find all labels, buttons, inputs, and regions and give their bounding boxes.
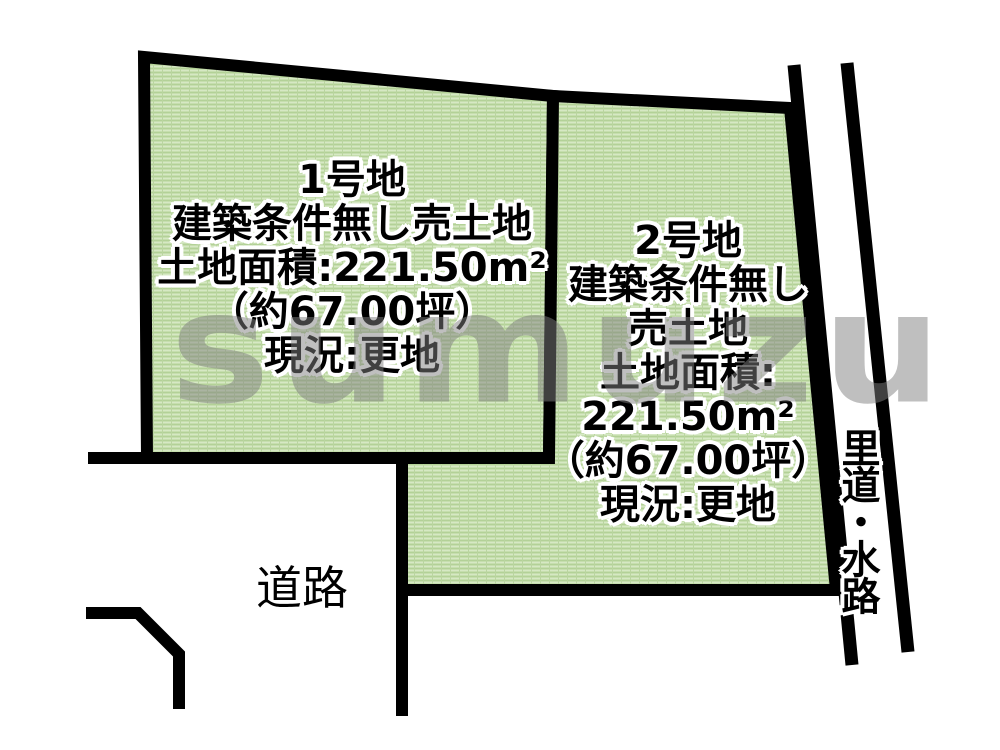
- road-label: 道路: [256, 552, 348, 618]
- plot2-name: 2号地: [478, 219, 898, 263]
- plot2-condition: 建築条件無し: [478, 263, 898, 307]
- waterway-label: 里道・水路: [838, 428, 877, 613]
- plot2-area-title: 土地面積:: [478, 351, 898, 395]
- plot1-name: 1号地: [150, 158, 554, 202]
- road-corner-line: [86, 613, 179, 709]
- plot2-sale-type: 売土地: [478, 307, 898, 351]
- land-plot-diagram: 1号地 建築条件無し売土地 土地面積:221.50m² （約67.00坪） 現況…: [0, 0, 1000, 750]
